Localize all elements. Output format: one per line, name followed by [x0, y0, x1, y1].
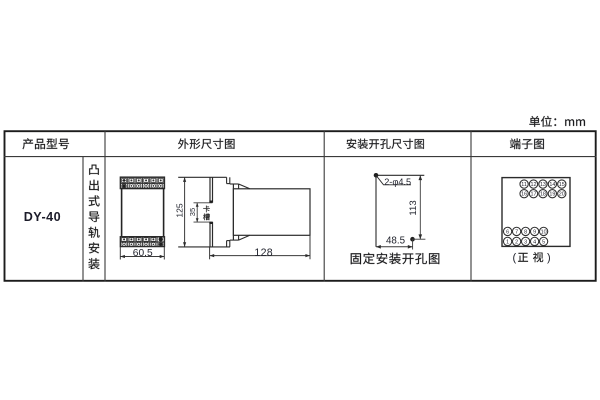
- svg-text:15: 15: [559, 182, 565, 188]
- svg-text:14: 14: [549, 182, 555, 188]
- svg-text:DY-40: DY-40: [24, 210, 61, 224]
- svg-text:125: 125: [175, 203, 185, 218]
- svg-text:60.5: 60.5: [133, 248, 153, 259]
- svg-text:4: 4: [533, 239, 536, 245]
- svg-text:113: 113: [408, 200, 419, 215]
- svg-text:18: 18: [540, 192, 546, 198]
- svg-text:12: 12: [531, 182, 537, 188]
- svg-text:7: 7: [515, 229, 518, 235]
- svg-text:11: 11: [521, 182, 527, 188]
- svg-text:1: 1: [506, 239, 509, 245]
- svg-text:8: 8: [524, 229, 527, 235]
- svg-text:35: 35: [188, 208, 197, 216]
- svg-text:(: (: [512, 252, 516, 264]
- svg-text:6: 6: [506, 229, 509, 235]
- svg-text:19: 19: [549, 192, 555, 198]
- svg-text:2-φ4.5: 2-φ4.5: [384, 177, 411, 187]
- svg-text:3: 3: [524, 239, 527, 245]
- svg-text:5: 5: [542, 239, 545, 245]
- svg-text:10: 10: [541, 229, 547, 235]
- svg-text:16: 16: [521, 192, 527, 198]
- svg-text:17: 17: [531, 192, 537, 198]
- svg-text:13: 13: [540, 182, 546, 188]
- svg-text:20: 20: [559, 192, 565, 198]
- svg-text:48.5: 48.5: [386, 236, 406, 247]
- svg-text:): ): [547, 252, 551, 264]
- svg-text:9: 9: [533, 229, 536, 235]
- svg-text:128: 128: [254, 247, 273, 259]
- svg-text:2: 2: [515, 239, 518, 245]
